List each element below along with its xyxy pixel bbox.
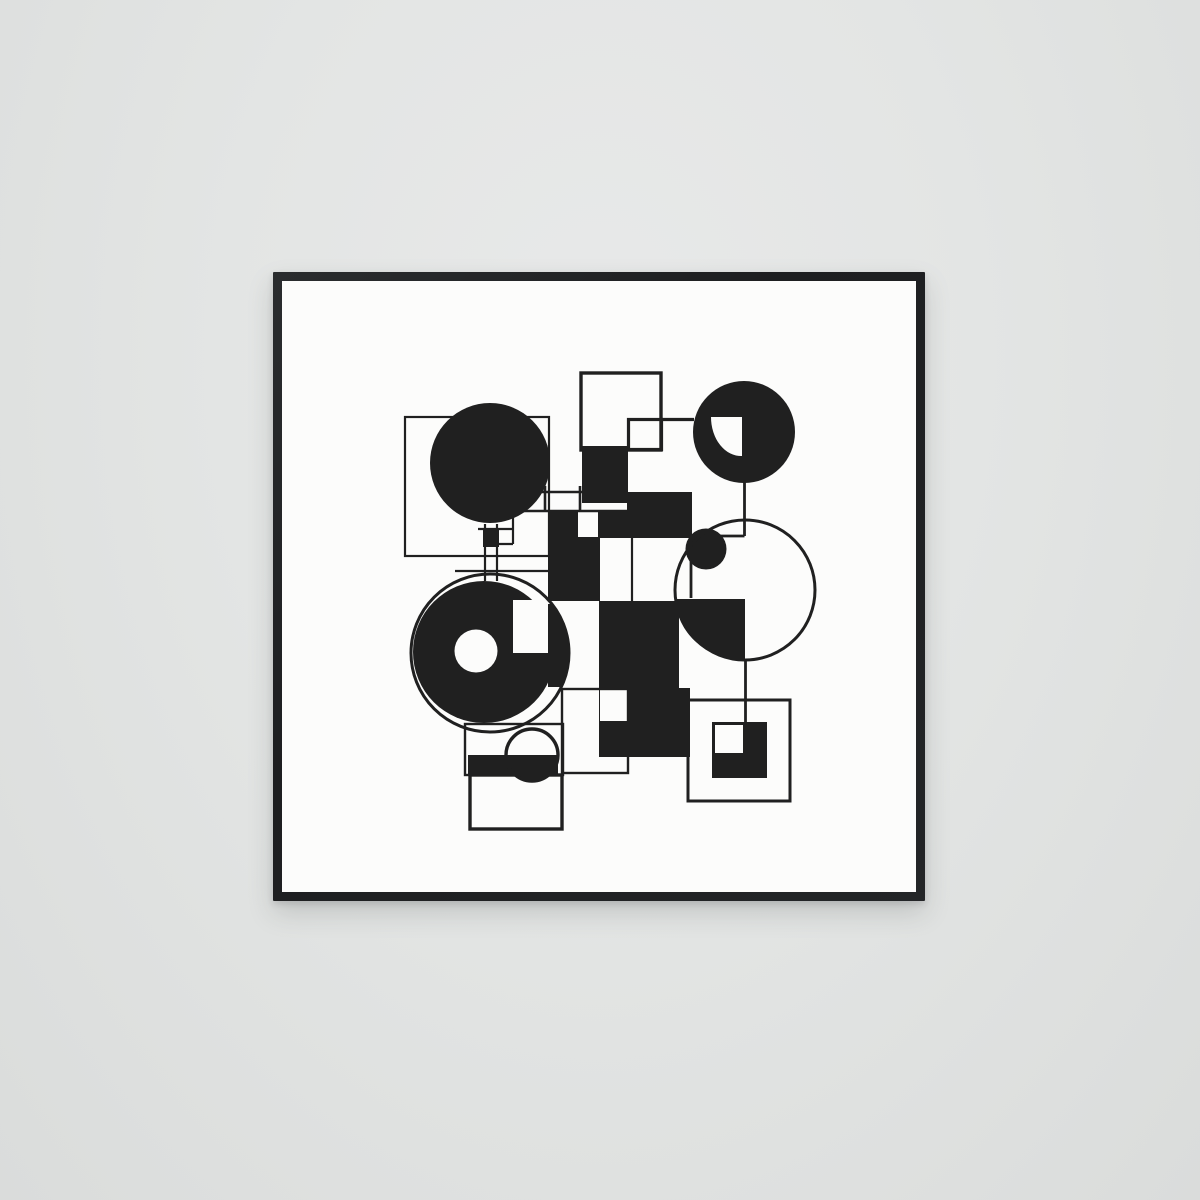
picture-frame xyxy=(273,272,925,901)
art-print-canvas xyxy=(282,281,916,892)
wall xyxy=(0,0,1200,1200)
